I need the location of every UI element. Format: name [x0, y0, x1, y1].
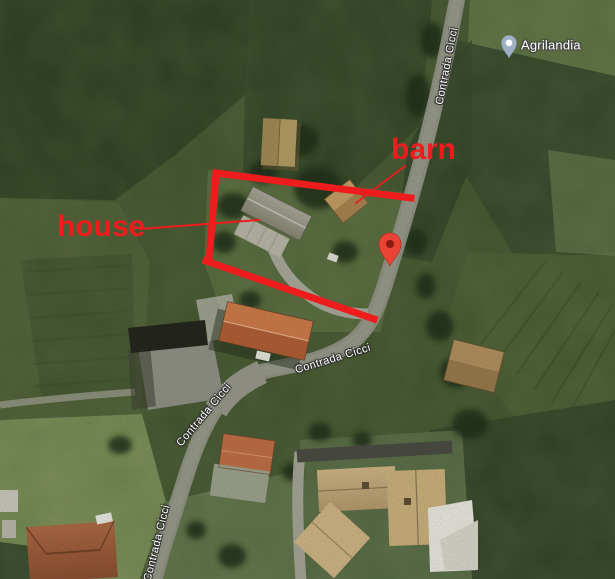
map-pin-hole [386, 240, 394, 248]
map-pin[interactable] [379, 233, 401, 266]
annotation-text-house: house [57, 210, 145, 244]
poi-pin-agrilandia[interactable] [501, 35, 516, 58]
annotation-text-barn: barn [391, 133, 456, 167]
poi-pin-dot [506, 40, 513, 47]
poi-label-agrilandia[interactable]: Agrilandia [521, 38, 581, 53]
pins-overlay [0, 0, 615, 579]
google-maps-satellite-view: Agrilandia Contrada Cicci Contrada Cicci… [0, 0, 615, 579]
